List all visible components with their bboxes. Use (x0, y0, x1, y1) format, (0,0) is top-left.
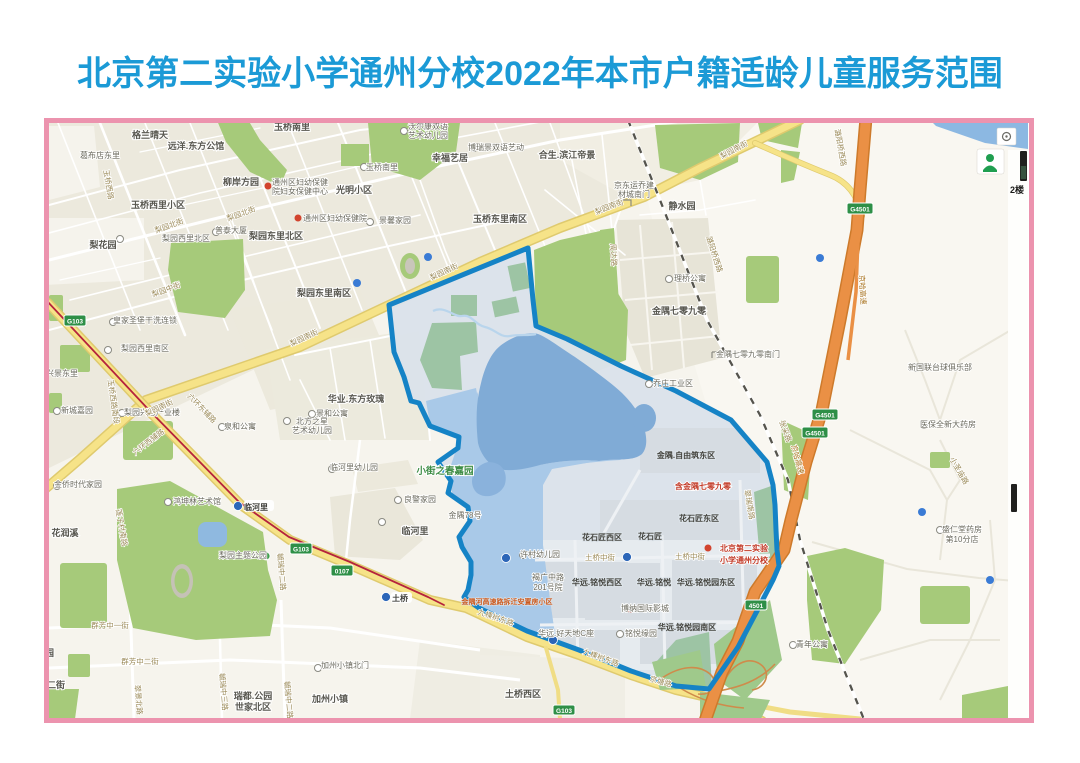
svg-text:花石匠西区: 花石匠西区 (582, 532, 622, 542)
svg-text:华远.铭悦园南区: 华远.铭悦园南区 (658, 622, 716, 632)
svg-text:普泰大厦: 普泰大厦 (215, 225, 247, 235)
svg-text:金隅七零九零: 金隅七零九零 (651, 305, 707, 316)
svg-text:兴景东里: 兴景东里 (46, 368, 78, 378)
svg-text:二街: 二街 (47, 679, 65, 690)
svg-text:金隅78号: 金隅78号 (449, 510, 482, 520)
svg-text:加州小镇北门: 加州小镇北门 (321, 660, 369, 670)
svg-text:临河里幼儿园: 临河里幼儿园 (330, 462, 378, 472)
svg-text:盛仁堂药房: 盛仁堂药房 (942, 524, 982, 534)
svg-text:第10分店: 第10分店 (946, 534, 979, 544)
svg-text:华远.铭悦: 华远.铭悦 (637, 577, 671, 587)
svg-text:艺术幼儿园: 艺术幼儿园 (408, 130, 448, 140)
svg-text:群芳中二街: 群芳中二街 (121, 656, 159, 666)
svg-text:群芳中一街: 群芳中一街 (91, 620, 129, 630)
svg-text:梨园东里南区: 梨园东里南区 (296, 287, 351, 298)
svg-text:梨园西里南区: 梨园西里南区 (121, 343, 169, 353)
svg-text:柳岸方园: 柳岸方园 (223, 176, 259, 187)
svg-text:G4501: G4501 (850, 207, 870, 214)
svg-text:通州区妇幼保健: 通州区妇幼保健 (272, 177, 328, 187)
svg-text:G4501: G4501 (805, 431, 825, 438)
svg-text:玉桥东里南区: 玉桥东里南区 (473, 213, 527, 224)
svg-text:华远.铭悦园东区: 华远.铭悦园东区 (677, 577, 735, 587)
svg-text:G103: G103 (293, 547, 309, 554)
svg-text:医保全新大药房: 医保全新大药房 (920, 419, 976, 429)
svg-text:0107: 0107 (335, 569, 350, 576)
svg-text:花润溪: 花润溪 (51, 527, 79, 538)
svg-text:加州小镇: 加州小镇 (311, 693, 348, 704)
svg-text:京东运乔建: 京东运乔建 (614, 180, 654, 190)
svg-text:葛布店东里: 葛布店东里 (80, 150, 120, 160)
svg-text:G103: G103 (67, 319, 83, 326)
svg-text:世家北区: 世家北区 (235, 701, 271, 712)
svg-text:光明小区: 光明小区 (335, 184, 372, 195)
svg-text:铭悦缘园: 铭悦缘园 (625, 628, 657, 638)
svg-text:景馨家园: 景馨家园 (379, 215, 411, 225)
svg-text:皇家圣堡干洗连锁: 皇家圣堡干洗连锁 (113, 315, 177, 325)
svg-text:华远.好天地C座: 华远.好天地C座 (538, 628, 594, 638)
svg-text:临河里: 临河里 (401, 525, 428, 536)
svg-text:材城南门: 材城南门 (618, 189, 650, 199)
svg-text:玉桥西里小区: 玉桥西里小区 (131, 199, 185, 210)
svg-text:土桥: 土桥 (392, 593, 409, 603)
svg-text:新城嘉园: 新城嘉园 (61, 405, 93, 415)
svg-text:北方之星: 北方之星 (296, 416, 328, 426)
svg-text:静水园: 静水园 (668, 200, 695, 211)
svg-text:北京第二实验: 北京第二实验 (720, 543, 769, 553)
svg-text:小街之春嘉园: 小街之春嘉园 (415, 465, 473, 477)
svg-text:梨园主题公园: 梨园主题公园 (219, 550, 267, 560)
svg-text:褐广中路: 褐广中路 (532, 572, 564, 582)
svg-text:通州区妇幼保健院: 通州区妇幼保健院 (303, 213, 367, 223)
svg-text:院妇女保健中心: 院妇女保健中心 (272, 186, 328, 196)
svg-text:周达路: 周达路 (608, 243, 619, 266)
svg-text:玉桥南里: 玉桥南里 (366, 162, 398, 172)
svg-text:合生.滨江帝景: 合生.滨江帝景 (539, 149, 596, 160)
svg-text:华远.铭悦西区: 华远.铭悦西区 (572, 577, 622, 587)
svg-text:乔庄工业区: 乔庄工业区 (653, 378, 693, 388)
svg-text:新国联台球俱乐部: 新国联台球俱乐部 (908, 362, 972, 372)
svg-text:2楼: 2楼 (1010, 184, 1024, 195)
svg-text:梨园西里北区: 梨园西里北区 (162, 233, 210, 243)
svg-text:临河里: 临河里 (244, 502, 268, 512)
svg-text:博纳国际影城: 博纳国际影城 (621, 603, 669, 613)
svg-text:含金隅七零九零: 含金隅七零九零 (675, 481, 732, 491)
svg-text:土桥中街: 土桥中街 (585, 552, 615, 562)
svg-text:鸿坤林艺术馆: 鸿坤林艺术馆 (173, 496, 221, 506)
svg-text:4501: 4501 (749, 603, 764, 610)
svg-text:泉和公寓: 泉和公寓 (224, 421, 256, 431)
svg-text:博瑞景双语艺动: 博瑞景双语艺动 (468, 142, 524, 152)
svg-text:远洋.东方公馆: 远洋.东方公馆 (168, 140, 225, 151)
svg-text:金隅河高速路拆迁安置房小区: 金隅河高速路拆迁安置房小区 (461, 597, 553, 606)
svg-text:格兰晴天: 格兰晴天 (132, 129, 169, 140)
svg-text:金隅七零九零南门: 金隅七零九零南门 (716, 349, 780, 359)
svg-text:花石匠: 花石匠 (638, 531, 662, 541)
svg-text:幸福艺居: 幸福艺居 (432, 152, 468, 163)
svg-text:瑞都.公园: 瑞都.公园 (234, 690, 273, 701)
svg-text:土桥中街: 土桥中街 (675, 551, 705, 561)
svg-text:金侨时代家园: 金侨时代家园 (54, 479, 102, 489)
svg-text:许村幼儿园: 许村幼儿园 (520, 549, 560, 559)
svg-text:金隅.自由筑东区: 金隅.自由筑东区 (656, 450, 715, 460)
svg-text:理桥公寓: 理桥公寓 (674, 273, 706, 283)
svg-text:土桥西区: 土桥西区 (505, 688, 541, 699)
svg-text:梨园东里北区: 梨园东里北区 (248, 230, 303, 241)
svg-text:梨花园: 梨花园 (88, 239, 116, 250)
svg-text:G4501: G4501 (815, 413, 835, 420)
svg-text:201号院: 201号院 (533, 582, 562, 592)
svg-text:良警家园: 良警家园 (404, 494, 436, 504)
svg-text:艺术幼儿园: 艺术幼儿园 (292, 425, 332, 435)
svg-text:青年公寓: 青年公寓 (796, 639, 828, 649)
svg-text:花石匠东区: 花石匠东区 (679, 513, 719, 523)
svg-text:G103: G103 (556, 708, 572, 715)
svg-text:小学通州分校: 小学通州分校 (719, 555, 769, 565)
svg-text:华业.东方玫瑰: 华业.东方玫瑰 (328, 393, 385, 404)
